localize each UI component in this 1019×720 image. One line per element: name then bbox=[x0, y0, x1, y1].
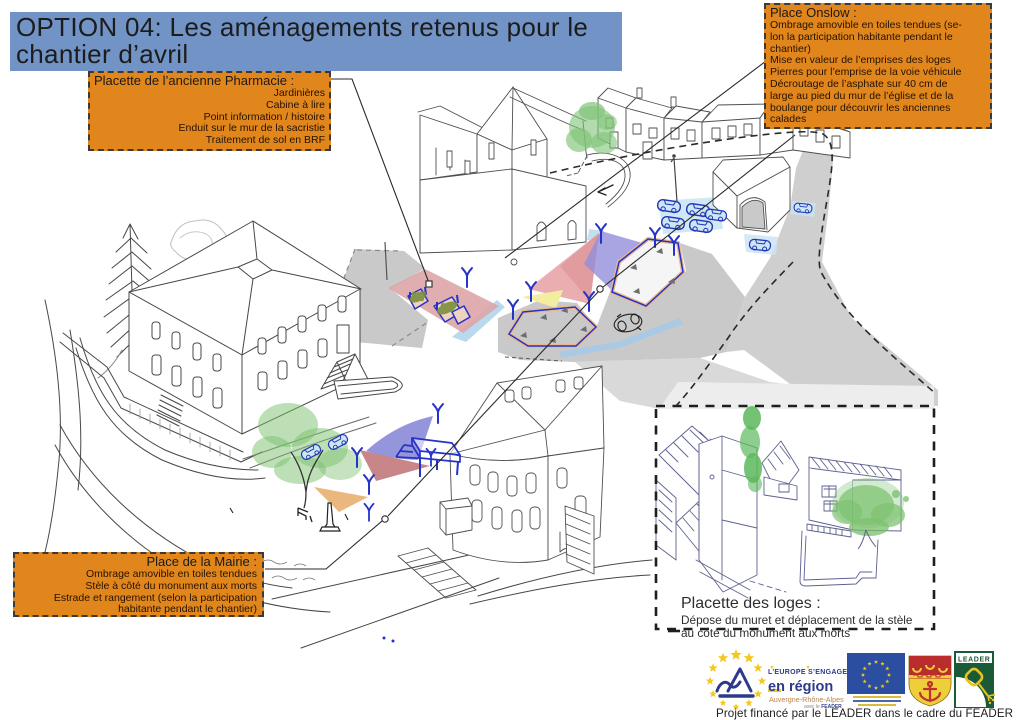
svg-text:L’EUROPE S’ENGAGE: L’EUROPE S’ENGAGE bbox=[768, 669, 847, 676]
svg-text:Auvergne-Rhône-Alpes: Auvergne-Rhône-Alpes bbox=[769, 695, 844, 704]
svg-text:en région: en région bbox=[768, 679, 833, 695]
svg-text:LEADER: LEADER bbox=[958, 657, 990, 664]
